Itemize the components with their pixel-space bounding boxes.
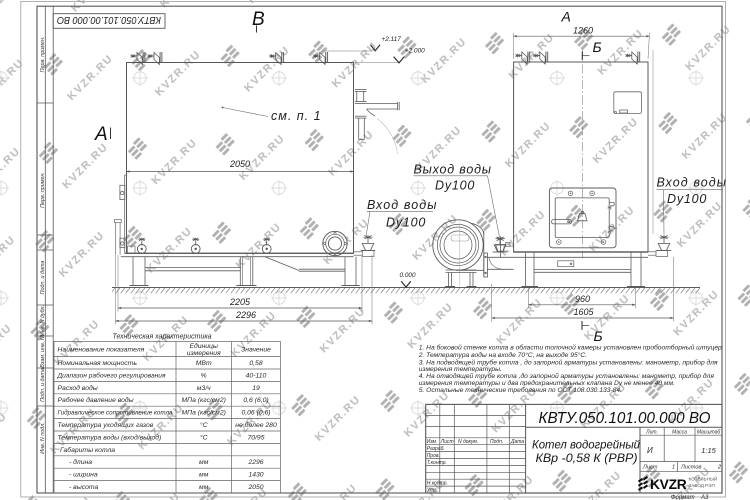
svg-text:0,6 (6,0): 0,6 (6,0) — [243, 397, 268, 404]
svg-text:И: И — [647, 446, 653, 455]
svg-text:Наименование показателя: Наименование показателя — [58, 347, 145, 354]
svg-text:ЗАВОД РЭП: ЗАВОД РЭП — [689, 483, 715, 488]
svg-text:Dy100: Dy100 — [435, 179, 475, 193]
svg-text:N докум.: N докум. — [458, 439, 478, 445]
svg-text:Пров.: Пров. — [427, 453, 440, 459]
svg-text:Инв. N дубл.: Инв. N дубл. — [40, 305, 46, 336]
svg-text:- ширина: - ширина — [69, 472, 98, 479]
svg-text:Т.контр.: Т.контр. — [427, 460, 447, 466]
svg-text:Гидравлическое сопротивление к: Гидравлическое сопротивление котла — [58, 409, 173, 417]
svg-text:Листов: Листов — [680, 465, 701, 471]
svg-text:0.000: 0.000 — [400, 272, 416, 279]
svg-text:Б: Б — [594, 328, 603, 344]
svg-text:не более 280: не более 280 — [235, 421, 277, 429]
svg-text:5. Остальные технические треб: 5. Остальные технические требования по О… — [419, 386, 622, 394]
svg-text:Температура воды (вход/выход): Температура воды (вход/выход) — [58, 433, 162, 441]
svg-text:Температура уходящих газов: Температура уходящих газов — [58, 421, 154, 429]
svg-text:Масштаб: Масштаб — [697, 429, 721, 435]
svg-text:Разраб.: Разраб. — [427, 446, 445, 452]
svg-text:измерения температуры.: измерения температуры. — [419, 366, 502, 373]
svg-text:измерения температуры и два пр: измерения температуры и два предохраните… — [419, 379, 675, 387]
svg-text:Диапазон рабочего регулировани: Диапазон рабочего регулирования — [57, 371, 166, 379]
svg-text:%: % — [201, 372, 207, 379]
svg-text:измерения: измерения — [187, 350, 221, 357]
svg-text:Габариты котла: Габариты котла — [60, 446, 115, 454]
svg-text:Техническая характеристика: Техническая характеристика — [112, 334, 211, 341]
svg-text:Расход воды: Расход воды — [58, 384, 98, 392]
svg-text:Н.контр.: Н.контр. — [427, 481, 448, 487]
svg-text:Значение: Значение — [241, 347, 271, 354]
svg-text:°С: °С — [200, 433, 208, 441]
svg-text:2296: 2296 — [235, 310, 256, 320]
svg-text:Dy100: Dy100 — [667, 192, 707, 206]
svg-text:Лист: Лист — [642, 465, 658, 471]
svg-text:70/95: 70/95 — [247, 434, 264, 441]
svg-text:КВр -0,58 К (РВР): КВр -0,58 К (РВР) — [536, 451, 638, 465]
svg-text:1. На боковой стенке котла в: 1. На боковой стенке котла в области топ… — [419, 344, 722, 352]
svg-text:Выход воды: Выход воды — [414, 163, 492, 177]
svg-text:Утв.: Утв. — [427, 488, 438, 494]
svg-text:1430: 1430 — [248, 472, 263, 479]
svg-text:1:15: 1:15 — [701, 446, 716, 455]
svg-text:Б: Б — [593, 39, 602, 55]
svg-text:2050: 2050 — [229, 159, 250, 169]
svg-text:+2.117: +2.117 — [382, 36, 402, 43]
svg-text:В: В — [252, 9, 265, 30]
svg-text:Лист: Лист — [440, 439, 454, 445]
svg-text:Взам. инв. N: Взам. инв. N — [40, 336, 46, 368]
svg-text:мм: мм — [199, 472, 209, 479]
svg-text:40-110: 40-110 — [246, 372, 267, 379]
svg-text:КВТУ.050.101.00.000 ВО: КВТУ.050.101.00.000 ВО — [57, 14, 161, 26]
svg-text:А3: А3 — [700, 495, 709, 500]
svg-text:Масса: Масса — [672, 429, 687, 435]
svg-text:МПа (кгс/см2): МПа (кгс/см2) — [181, 410, 225, 417]
svg-text:Лит.: Лит. — [645, 429, 658, 435]
svg-text:960: 960 — [575, 294, 590, 304]
svg-text:19: 19 — [252, 385, 260, 392]
svg-text:А: А — [94, 124, 108, 145]
svg-text:1: 1 — [672, 465, 675, 471]
svg-text:1260: 1260 — [573, 25, 593, 35]
svg-text:2205: 2205 — [229, 297, 251, 307]
svg-text:Дата: Дата — [510, 439, 524, 445]
svg-text:Подп. и дата: Подп. и дата — [40, 261, 46, 295]
svg-text:Изм.: Изм. — [427, 439, 438, 445]
svg-text:0,06 (0,6): 0,06 (0,6) — [241, 410, 270, 417]
svg-text:Dy100: Dy100 — [386, 216, 426, 230]
svg-text:см. п. 1: см. п. 1 — [271, 109, 322, 123]
svg-text:2296: 2296 — [247, 459, 263, 466]
svg-text:А: А — [561, 9, 571, 25]
svg-text:Номинальная мощность: Номинальная мощность — [58, 360, 138, 367]
svg-text:Рабочее давление воды: Рабочее давление воды — [58, 396, 134, 404]
svg-text:Котел водогрейный: Котел водогрейный — [532, 438, 640, 452]
svg-text:м3/ч: м3/ч — [197, 385, 211, 392]
svg-text:1605: 1605 — [573, 307, 594, 317]
svg-text:Формат: Формат — [671, 495, 695, 500]
svg-text:2050: 2050 — [247, 484, 263, 491]
svg-text:- длина: - длина — [69, 458, 92, 466]
svg-text:КВТУ.050.101.00.000 ВО: КВТУ.050.101.00.000 ВО — [539, 410, 711, 427]
svg-text:KVZR: KVZR — [650, 477, 687, 492]
svg-text:Перв. примен.: Перв. примен. — [40, 172, 46, 208]
svg-text:Вход воды: Вход воды — [657, 176, 728, 190]
svg-text:Подп. и дата: Подп. и дата — [40, 368, 46, 402]
svg-text:МВт: МВт — [196, 360, 212, 367]
svg-text:мм: мм — [199, 459, 209, 466]
svg-text:МПа (кгс/см2): МПа (кгс/см2) — [181, 397, 225, 404]
svg-text:- высота: - высота — [69, 484, 98, 491]
svg-text:Вход воды: Вход воды — [367, 198, 438, 212]
svg-text:Единицы: Единицы — [189, 342, 217, 350]
svg-text:мм: мм — [199, 484, 209, 491]
svg-text:2. Температура воды на входе: 2. Температура воды на входе 70°С, на вы… — [418, 351, 588, 359]
svg-text:+2.000: +2.000 — [405, 48, 425, 55]
svg-text:КОТЕЛЬНЫЙ: КОТЕЛЬНЫЙ — [689, 475, 718, 482]
svg-text:Подп.: Подп. — [490, 439, 503, 445]
svg-text:Инв. N подл.: Инв. N подл. — [40, 422, 46, 454]
svg-text:0,58: 0,58 — [249, 360, 262, 367]
svg-text:Перв. примен.: Перв. примен. — [40, 37, 46, 73]
svg-text:°С: °С — [200, 421, 208, 429]
